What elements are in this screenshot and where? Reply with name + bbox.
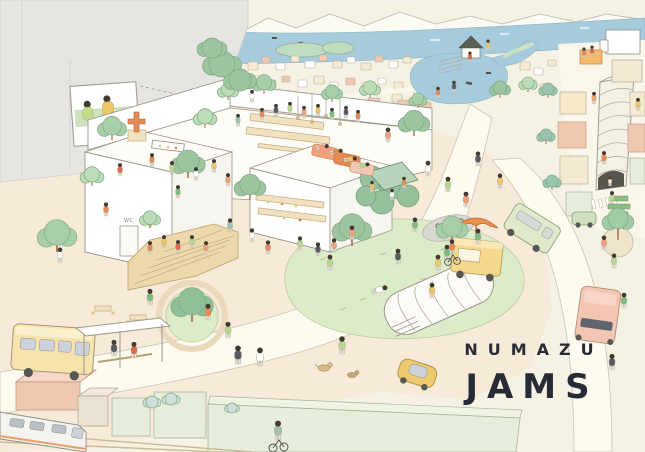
shop-building (628, 124, 645, 152)
city-building (378, 78, 386, 84)
boat (486, 72, 491, 74)
pink-bus (574, 285, 621, 345)
city-building (548, 60, 556, 66)
city-building (276, 63, 285, 70)
city-building (298, 80, 307, 87)
shop-building (558, 122, 586, 148)
city-building (403, 57, 411, 63)
city-building (282, 76, 290, 82)
city-building (361, 63, 371, 70)
delivery-truck (612, 60, 642, 82)
city-building (347, 57, 355, 63)
restroom-sign: WC (124, 218, 133, 224)
city-building (333, 61, 342, 68)
city-building (375, 56, 383, 62)
illustration-canvas: WC (0, 0, 645, 452)
arcade-street (558, 30, 645, 238)
city-building (291, 56, 299, 62)
numazu-jams-illustrated-map: WC (0, 0, 645, 452)
door (120, 226, 138, 256)
city-building (314, 76, 324, 84)
delivery-truck (600, 30, 640, 54)
title-lockup: NUMAZU JAMS (463, 340, 603, 407)
city-building (319, 55, 327, 61)
shop-building (560, 156, 588, 184)
shop-building (560, 92, 586, 114)
city-building (389, 61, 398, 68)
title-top: NUMAZU (464, 340, 603, 359)
title-bottom: JAMS (463, 367, 598, 407)
serving-window (457, 248, 480, 262)
city-building (346, 78, 355, 85)
boat (272, 37, 277, 39)
small-car (572, 212, 596, 228)
city-building (534, 68, 543, 75)
city-building (520, 62, 530, 70)
city-building (394, 82, 403, 89)
city-building (248, 62, 258, 70)
shop-building (630, 158, 645, 184)
city-building (262, 57, 270, 63)
bus-windshield (75, 342, 90, 356)
city-building (305, 61, 315, 68)
